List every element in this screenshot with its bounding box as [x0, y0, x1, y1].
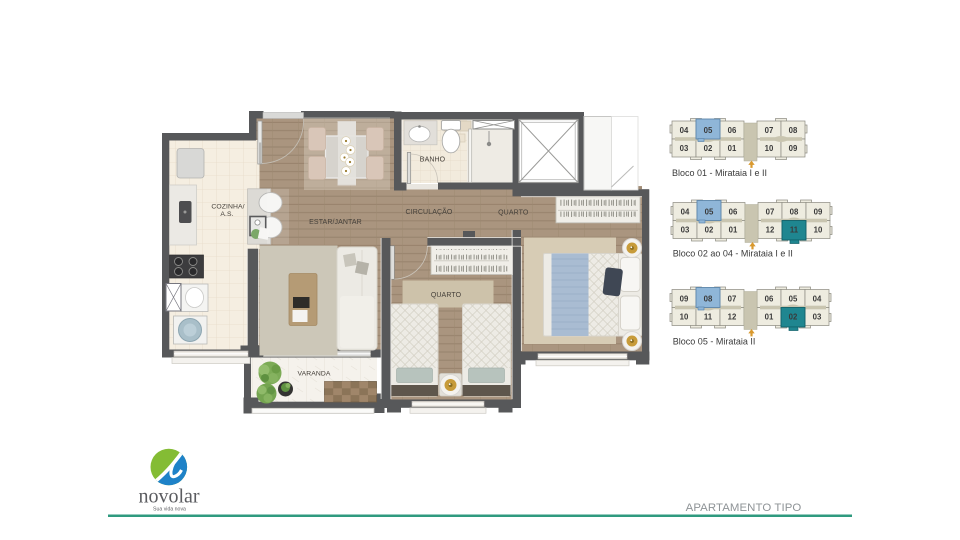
svg-text:03: 03: [813, 312, 822, 321]
svg-text:Bloco 05 - Mirataia II: Bloco 05 - Mirataia II: [673, 337, 756, 347]
svg-text:01: 01: [728, 144, 737, 153]
svg-text:A.S.: A.S.: [220, 211, 233, 218]
svg-text:QUARTO: QUARTO: [498, 209, 529, 216]
svg-text:09: 09: [789, 144, 798, 153]
svg-text:Sua vida nova: Sua vida nova: [153, 507, 186, 513]
svg-text:06: 06: [728, 126, 737, 135]
svg-text:11: 11: [790, 225, 799, 234]
svg-text:06: 06: [765, 294, 774, 303]
svg-text:10: 10: [814, 225, 823, 234]
svg-text:QUARTO: QUARTO: [431, 292, 462, 299]
svg-text:05: 05: [789, 294, 798, 303]
svg-text:09: 09: [814, 207, 823, 216]
svg-text:12: 12: [766, 225, 775, 234]
svg-text:10: 10: [765, 144, 774, 153]
svg-text:03: 03: [680, 144, 689, 153]
svg-text:ESTAR/JANTAR: ESTAR/JANTAR: [309, 219, 362, 226]
svg-text:Bloco 01 - Mirataia I e II: Bloco 01 - Mirataia I e II: [672, 168, 767, 178]
svg-text:05: 05: [705, 207, 714, 216]
svg-text:APARTAMENTO TIPO: APARTAMENTO TIPO: [686, 502, 802, 514]
svg-text:10: 10: [680, 312, 689, 321]
svg-text:CIRCULAÇÃO: CIRCULAÇÃO: [406, 207, 453, 216]
svg-text:novolar: novolar: [138, 486, 199, 508]
svg-text:07: 07: [766, 207, 775, 216]
svg-text:COZINHA/: COZINHA/: [211, 204, 244, 211]
svg-text:08: 08: [704, 294, 713, 303]
svg-text:02: 02: [705, 225, 714, 234]
svg-text:03: 03: [681, 225, 690, 234]
svg-text:05: 05: [704, 126, 713, 135]
svg-text:08: 08: [789, 126, 798, 135]
svg-text:VARANDA: VARANDA: [297, 371, 330, 378]
svg-text:11: 11: [704, 312, 713, 321]
svg-text:Bloco 02 ao 04 - Mirataia I e: Bloco 02 ao 04 - Mirataia I e II: [673, 249, 793, 259]
svg-text:09: 09: [680, 294, 689, 303]
svg-text:01: 01: [729, 225, 738, 234]
svg-text:06: 06: [729, 207, 738, 216]
svg-text:04: 04: [680, 126, 689, 135]
svg-text:07: 07: [728, 294, 737, 303]
svg-text:08: 08: [790, 207, 799, 216]
svg-text:02: 02: [704, 144, 713, 153]
svg-text:04: 04: [681, 207, 690, 216]
svg-text:BANHO: BANHO: [420, 156, 446, 163]
svg-text:07: 07: [765, 126, 774, 135]
svg-text:12: 12: [728, 312, 737, 321]
svg-text:02: 02: [789, 312, 798, 321]
svg-text:01: 01: [765, 312, 774, 321]
svg-text:04: 04: [813, 294, 822, 303]
